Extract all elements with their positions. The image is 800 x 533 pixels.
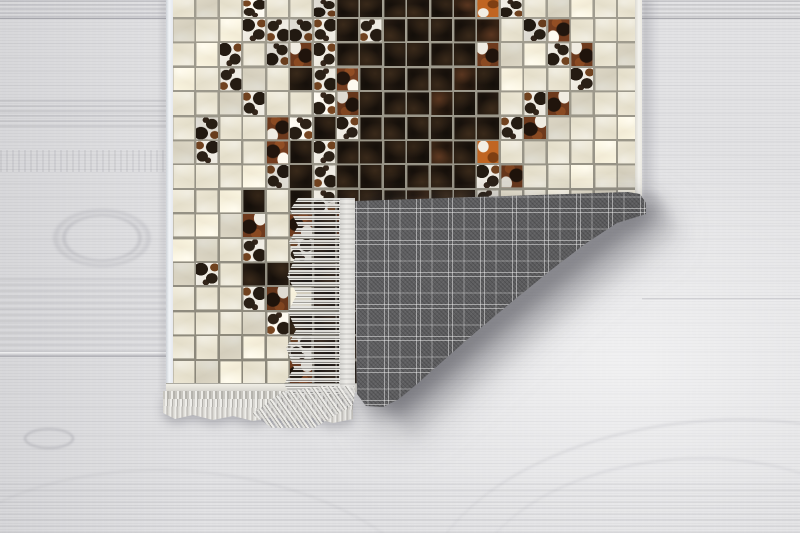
rug-backing-plaid bbox=[0, 0, 800, 533]
fold-edge-binding bbox=[339, 198, 355, 400]
folded-corner bbox=[0, 0, 800, 533]
photo-canvas bbox=[0, 0, 800, 533]
